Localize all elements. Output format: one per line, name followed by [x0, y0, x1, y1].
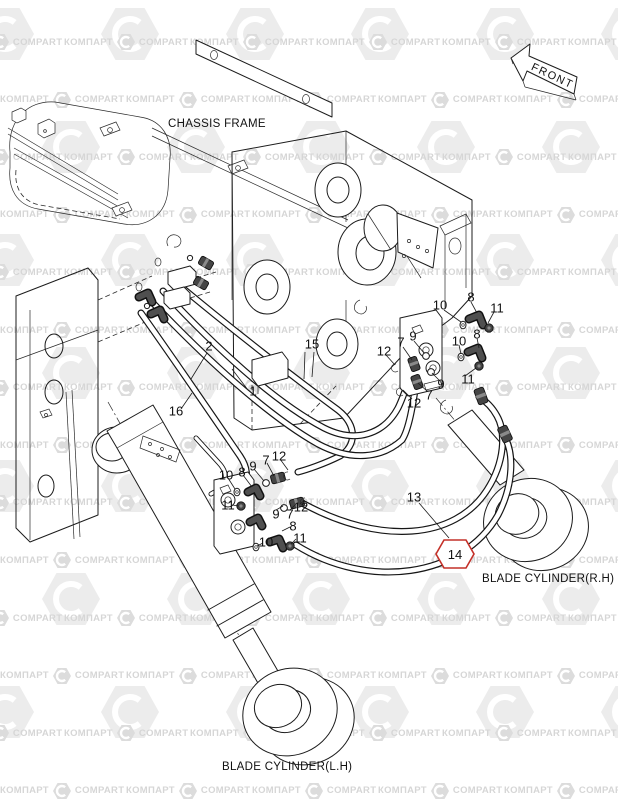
part-label-13: 13 [407, 490, 421, 505]
parts-diagram-page: КОМПАРТCOMPARTКОМПАРТCOMPARTКОМПАРТCOMPA… [0, 0, 618, 800]
part-label-10: 10 [433, 298, 447, 313]
part-label-15: 15 [305, 337, 319, 352]
hood-panel-group [8, 102, 170, 225]
front-arrow-group: FRONT [511, 44, 577, 100]
part-label-8: 8 [238, 465, 245, 480]
part-label-9: 9 [437, 377, 444, 392]
part-label-11: 11 [490, 301, 504, 316]
part-label-12: 12 [407, 396, 421, 411]
part-label-12: 12 [272, 449, 286, 464]
mount-plate-group [252, 352, 288, 394]
part-label-12: 12 [377, 344, 391, 359]
part-label-7: 7 [397, 335, 404, 350]
chassis-frame-caption: CHASSIS FRAME [168, 118, 266, 130]
part-label-9: 9 [249, 459, 256, 474]
left-bracket-group [16, 268, 152, 542]
part-label-11: 11 [461, 372, 475, 387]
part-label-11: 11 [221, 498, 235, 513]
part-label-1: 1 [249, 384, 256, 399]
part-label-8: 8 [467, 290, 474, 305]
part-label-10: 10 [452, 334, 466, 349]
piping-diagram-artwork: FRONT [0, 0, 618, 800]
part-label-2: 2 [205, 339, 212, 354]
part-label-8: 8 [473, 327, 480, 342]
blade-cylinder-rh-caption: BLADE CYLINDER(R.H) [482, 573, 614, 585]
highlighted-part-number: 14 [448, 547, 462, 562]
part-label-12: 12 [294, 500, 308, 515]
part-label-9: 9 [272, 507, 279, 522]
part-label-10: 10 [219, 468, 233, 483]
blade-cylinder-lh-caption: BLADE CYLINDER(L.H) [222, 761, 352, 773]
part-label-10: 10 [259, 535, 273, 550]
part-label-7: 7 [425, 388, 432, 403]
highlighted-part-badge[interactable]: 14 [436, 540, 474, 568]
part-label-11: 11 [293, 531, 307, 546]
part-label-7: 7 [262, 453, 269, 468]
part-label-16: 16 [169, 404, 183, 419]
part-label-9: 9 [409, 329, 416, 344]
